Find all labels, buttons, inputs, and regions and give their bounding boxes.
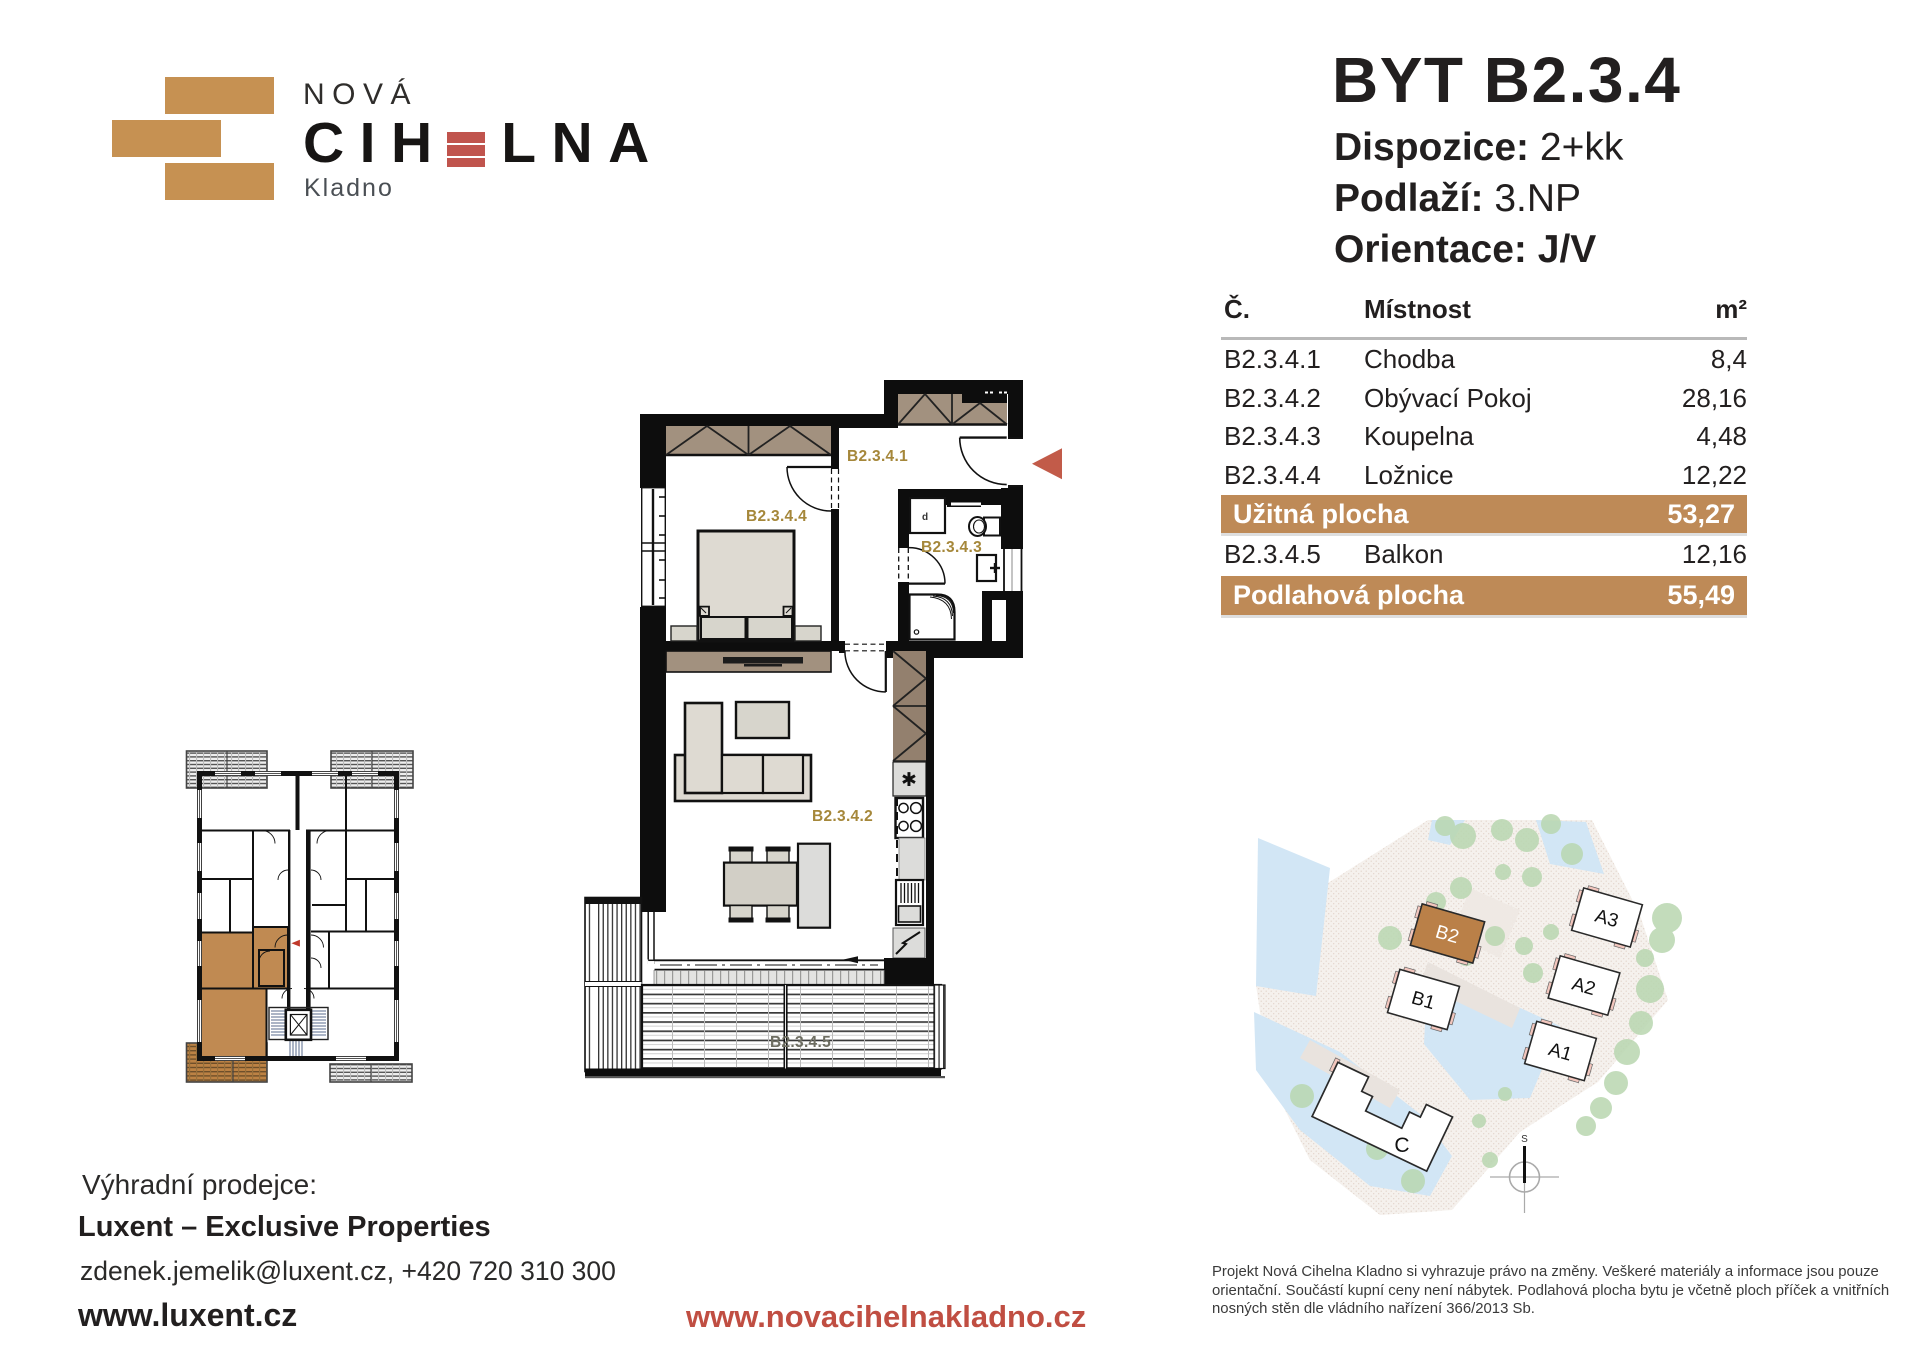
svg-text:B2.3.4.4: B2.3.4.4 <box>746 508 807 525</box>
svg-text:d: d <box>922 512 928 523</box>
svg-text:B2.3.4.1: B2.3.4.1 <box>847 448 908 465</box>
svg-text:C: C <box>1394 1134 1409 1157</box>
svg-text:B2.3.4.3: B2.3.4.3 <box>921 539 982 556</box>
svg-text:✱: ✱ <box>901 770 917 791</box>
svg-text:S: S <box>1521 1134 1528 1145</box>
svg-text:B2.3.4.2: B2.3.4.2 <box>812 808 873 825</box>
svg-text:B2.3.4.5: B2.3.4.5 <box>770 1034 831 1051</box>
